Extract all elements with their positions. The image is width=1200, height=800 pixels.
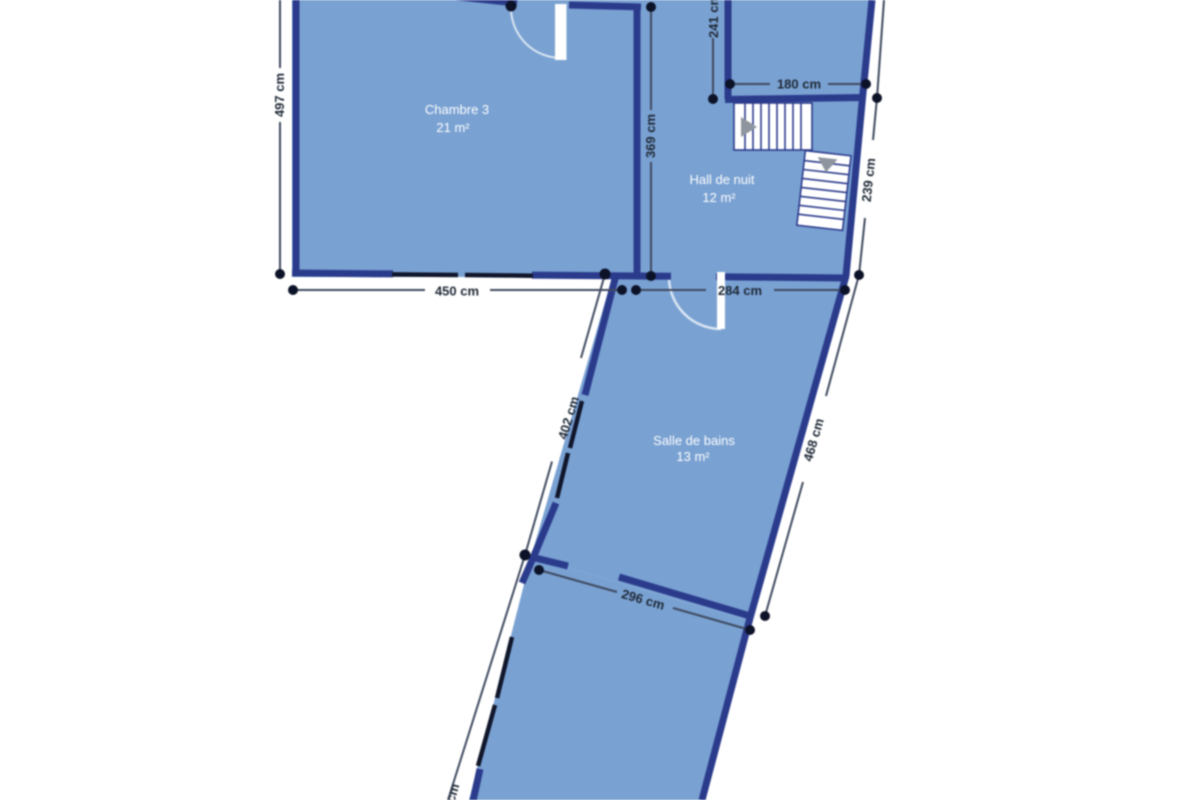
svg-text:21 m²: 21 m² [436,120,470,135]
svg-text:241 cm: 241 cm [706,0,721,38]
svg-text:180 cm: 180 cm [777,77,821,92]
svg-text:239 cm: 239 cm [859,157,879,202]
svg-text:369 cm: 369 cm [643,114,658,158]
svg-text:13 m²: 13 m² [676,449,710,464]
svg-text:284 cm: 284 cm [718,283,762,298]
svg-text:450 cm: 450 cm [435,284,479,299]
svg-text:Salle de bains: Salle de bains [653,433,735,448]
svg-text:497 cm: 497 cm [272,73,287,117]
svg-text:12 m²: 12 m² [702,190,736,205]
svg-text:Hall de nuit: Hall de nuit [689,172,754,187]
svg-text:Chambre 3: Chambre 3 [425,102,489,117]
svg-text:cm: cm [443,782,463,800]
